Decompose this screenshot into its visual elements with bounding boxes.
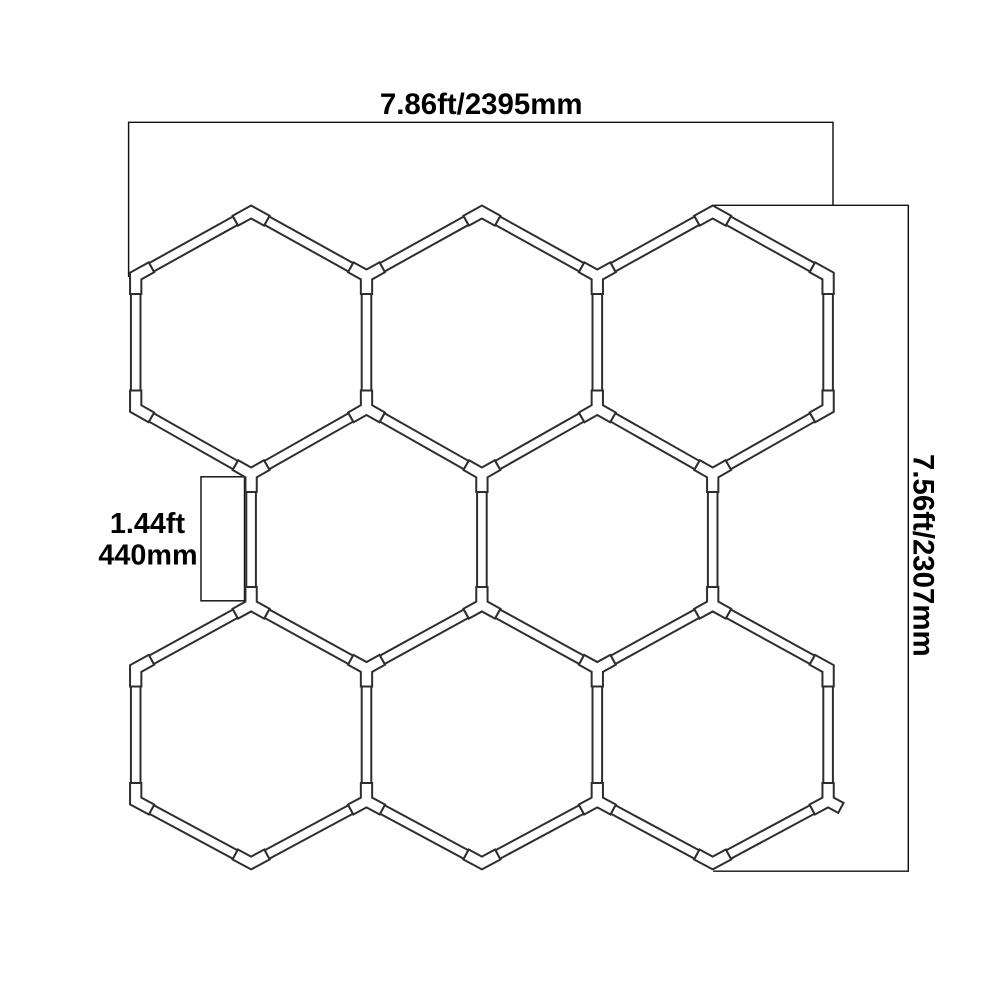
svg-text:440mm: 440mm — [98, 540, 197, 572]
svg-text:7.56ft/2307mm: 7.56ft/2307mm — [907, 454, 940, 657]
svg-text:7.86ft/2395mm: 7.86ft/2395mm — [380, 88, 583, 121]
svg-text:1.44ft: 1.44ft — [110, 508, 186, 540]
